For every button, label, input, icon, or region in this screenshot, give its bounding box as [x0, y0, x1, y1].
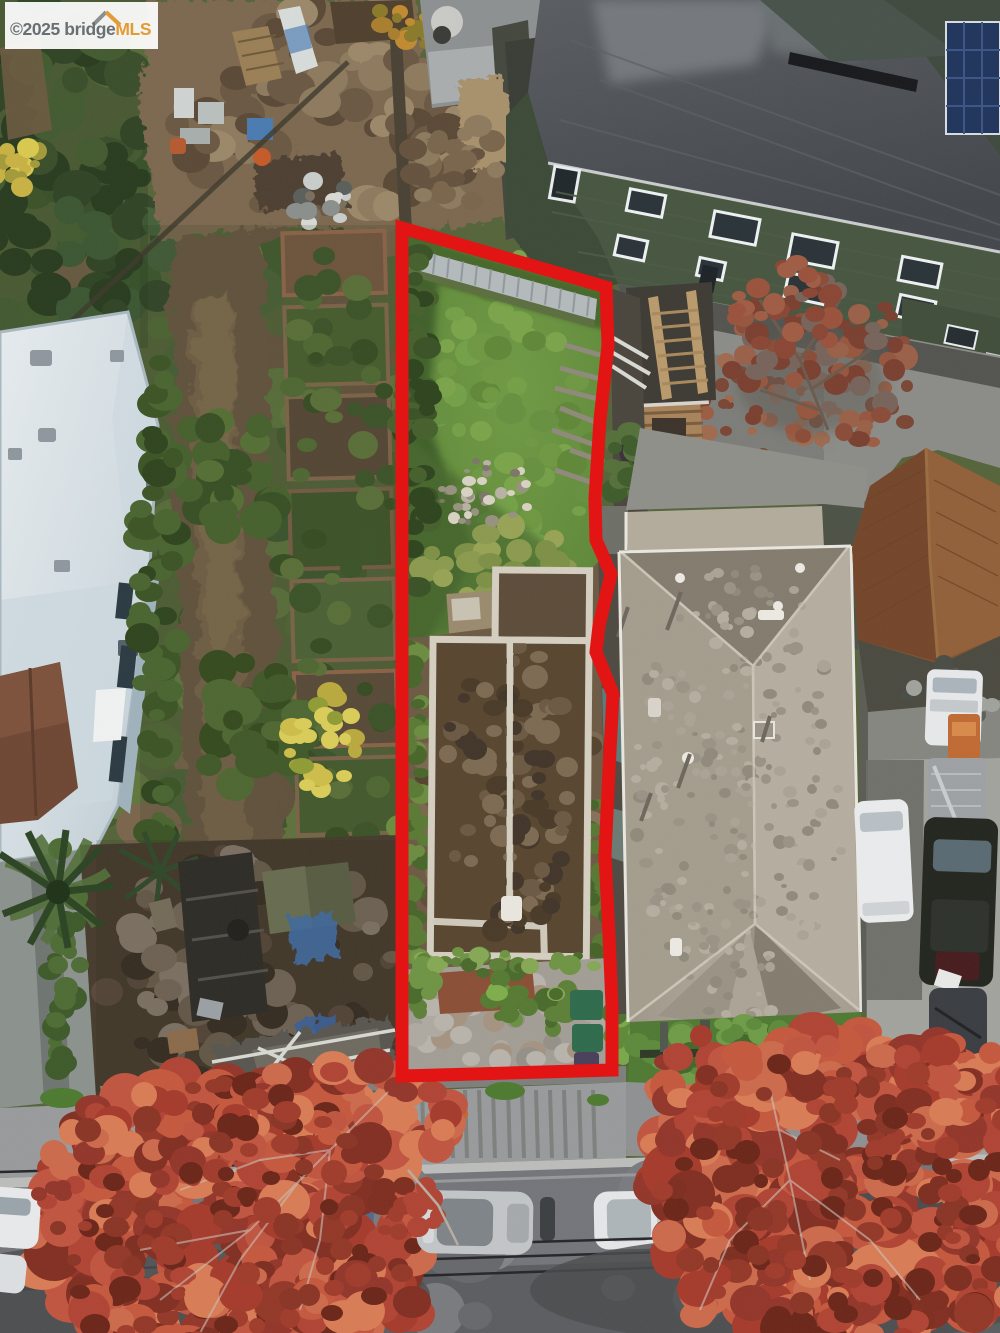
svg-text:©2025 bridgeMLS: ©2025 bridgeMLS [10, 19, 151, 39]
